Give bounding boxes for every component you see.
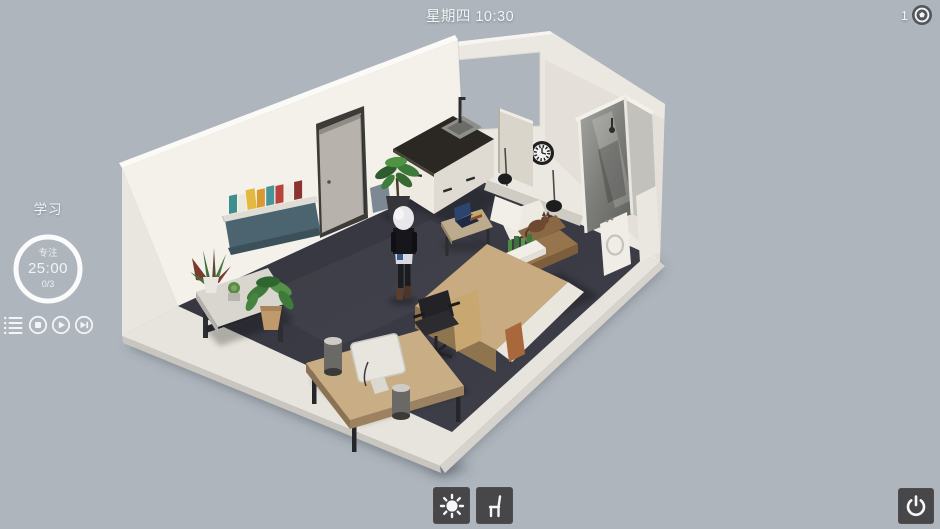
skip-next-icon xyxy=(74,315,94,335)
currency-display[interactable]: 1 xyxy=(901,4,933,26)
light-mode-button[interactable] xyxy=(433,487,470,524)
focus-timer: 专注 25:00 0/3 xyxy=(9,230,87,308)
coin-icon xyxy=(911,4,933,26)
speaker-left xyxy=(324,337,342,376)
timer-progress: 0/3 xyxy=(42,279,55,290)
datetime-display: 星期四 10:30 xyxy=(0,5,940,26)
stop-button[interactable] xyxy=(28,315,48,335)
power-icon xyxy=(903,493,929,519)
timer-time: 25:00 xyxy=(28,260,68,279)
sun-icon xyxy=(439,493,465,519)
stop-icon xyxy=(28,315,48,335)
playlist-icon xyxy=(3,315,25,335)
speaker-right xyxy=(392,384,410,420)
door[interactable] xyxy=(316,106,368,238)
timer-label: 专注 xyxy=(38,248,57,260)
play-icon xyxy=(51,315,71,335)
wall-clock[interactable] xyxy=(530,141,554,165)
panel-title: 学习 xyxy=(34,198,63,218)
room-viewport[interactable] xyxy=(0,0,940,529)
small-succulent xyxy=(228,282,240,301)
currency-count: 1 xyxy=(901,8,908,23)
study-panel: 学习 专注 25:00 0/3 xyxy=(0,198,96,335)
bottom-toolbar xyxy=(433,487,513,524)
chair-icon xyxy=(482,493,508,519)
play-button[interactable] xyxy=(51,315,71,335)
skip-button[interactable] xyxy=(74,315,94,335)
door-handle xyxy=(327,180,331,184)
faucet xyxy=(459,99,462,123)
playlist-button[interactable] xyxy=(3,315,25,335)
power-button[interactable] xyxy=(898,488,934,524)
timer-controls xyxy=(3,315,94,335)
furniture-mode-button[interactable] xyxy=(476,487,513,524)
